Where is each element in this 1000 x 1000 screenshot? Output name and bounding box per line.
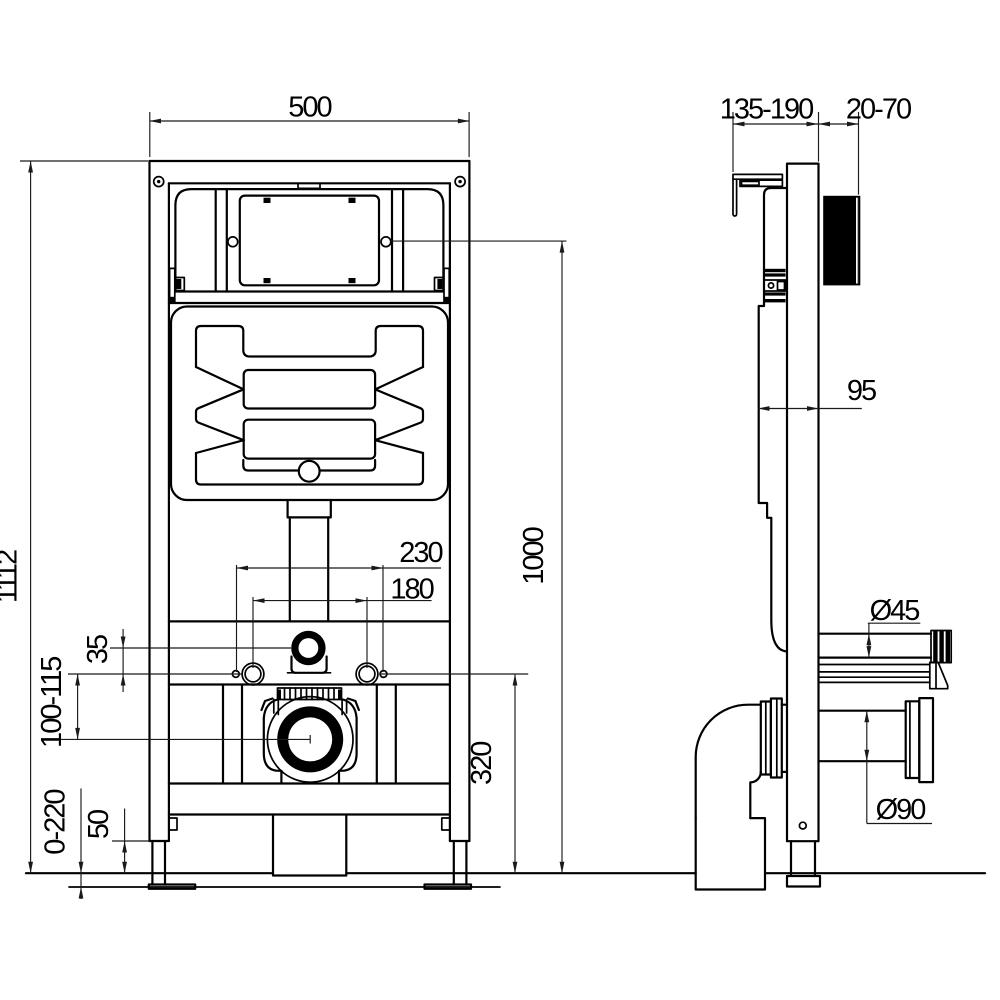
svg-text:500: 500 xyxy=(288,92,331,124)
svg-text:95: 95 xyxy=(847,375,876,407)
svg-text:1112: 1112 xyxy=(0,550,24,603)
svg-text:320: 320 xyxy=(466,742,498,785)
svg-text:135-190: 135-190 xyxy=(720,94,813,126)
svg-text:Ø90: Ø90 xyxy=(876,794,926,826)
svg-text:20-70: 20-70 xyxy=(846,94,911,126)
svg-text:0-220: 0-220 xyxy=(40,790,72,855)
svg-text:50: 50 xyxy=(83,810,115,839)
svg-text:35: 35 xyxy=(82,635,114,664)
svg-text:180: 180 xyxy=(390,574,433,606)
svg-text:100-115: 100-115 xyxy=(36,657,68,748)
svg-text:Ø45: Ø45 xyxy=(870,595,920,627)
svg-text:230: 230 xyxy=(399,537,442,569)
svg-text:1000: 1000 xyxy=(518,527,550,584)
